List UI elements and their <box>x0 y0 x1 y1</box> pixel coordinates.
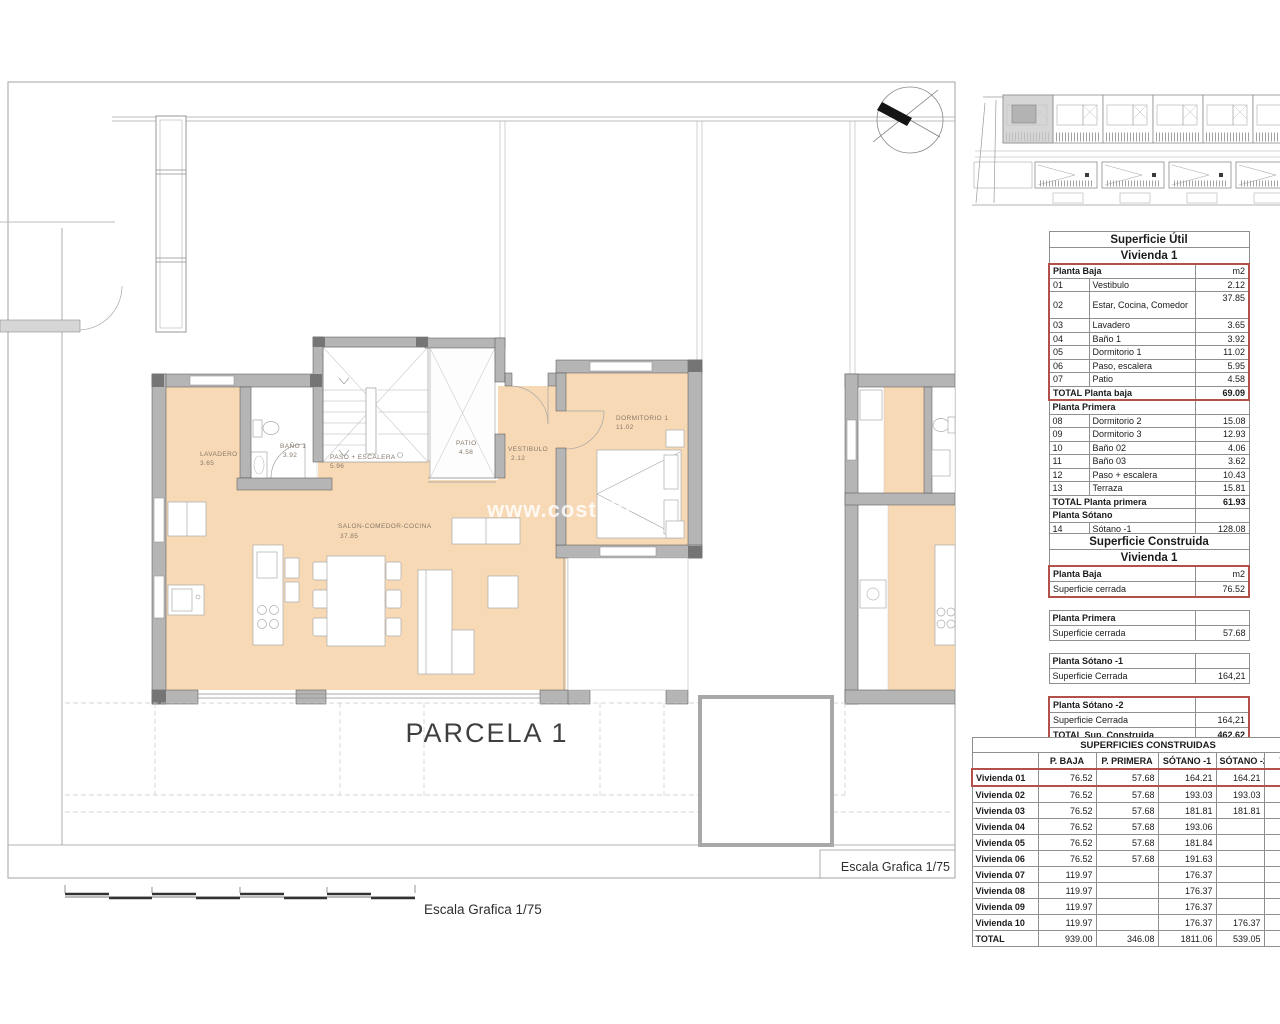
table-row: Vivienda 08119.97176.37 <box>972 883 1280 899</box>
table-row: 13Terraza15.81 <box>1049 482 1249 496</box>
sink-unit <box>168 585 204 615</box>
scale-label-corner: Escala Grafica 1/75 <box>841 860 950 874</box>
table-row: Vivienda 0376.5257.68181.81181.81 <box>972 803 1280 819</box>
table-row: Superficie cerrada57.68 <box>1049 626 1249 641</box>
table-row: 12Paso + escalera10.43 <box>1049 468 1249 482</box>
site-plan <box>972 95 1280 205</box>
table-row: Planta Primera <box>1049 611 1249 626</box>
north-arrow-icon <box>873 87 943 153</box>
table-title-row: Superficie Útil <box>1049 232 1249 248</box>
superficies-construidas-summary-table: SUPERFICIES CONSTRUIDAS P. BAJA P. PRIME… <box>971 737 1280 947</box>
table-title-row: SUPERFICIES CONSTRUIDAS <box>972 738 1280 753</box>
superficie-construida-table: Superficie Construida Vivienda 1 Planta … <box>1048 533 1250 744</box>
room-area-dormitorio: 11.02 <box>616 424 634 431</box>
planta-baja-section: Planta Bajam2 01Vestibulo2.12 02Estar, C… <box>1049 264 1249 400</box>
table-subtitle: Vivienda 1 <box>1049 550 1249 567</box>
room-area-paso: 5.96 <box>330 463 344 470</box>
col-header: SÓTANO -2 <box>1216 753 1264 770</box>
room-label-dormitorio: DORMITORIO 1 <box>616 415 668 422</box>
table-subtitle-row: Vivienda 1 <box>1049 248 1249 265</box>
table-row: 04Baño 13.92 <box>1049 332 1249 346</box>
room-area-patio: 4.58 <box>459 449 473 456</box>
table-row: Planta Sótano -2 <box>1049 697 1249 713</box>
table-title: SUPERFICIES CONSTRUIDAS <box>972 738 1280 753</box>
table-row: Vivienda 0476.5257.68193.06 <box>972 819 1280 835</box>
parcel-label: PARCELA 1 <box>405 718 568 748</box>
cabinet <box>168 502 206 536</box>
col-header: SÓTANO -1 <box>1158 753 1216 770</box>
room-label-bano: BAÑO 1 <box>280 441 306 450</box>
table-row: Planta Bajam2 <box>1049 566 1249 582</box>
fence-strip <box>156 116 186 332</box>
table-row: 09Dormitorio 312.93 <box>1049 428 1249 442</box>
room-label-patio: PATIO <box>456 440 477 447</box>
table-row: Planta Bajam2 <box>1049 264 1249 278</box>
table-row: Planta Sótano -1 <box>1049 654 1249 669</box>
coffee-table <box>488 576 518 608</box>
table-row: 11Baño 033.62 <box>1049 455 1249 469</box>
watermark: www.costabl si <box>487 497 632 523</box>
patio-area <box>428 346 496 482</box>
room-label-vestibulo: VESTIBULO <box>508 446 548 453</box>
pool <box>700 697 832 845</box>
table-title: Superficie Útil <box>1049 232 1249 248</box>
table-row: Superficie Cerrada164,21 <box>1049 669 1249 684</box>
table-row: Planta Sótano <box>1049 509 1249 523</box>
col-header: TOTAL <box>1264 753 1280 770</box>
vivienda-01-highlight: Vivienda 0176.5257.68164.21164.21 <box>972 769 1280 786</box>
table-row: TOTAL Planta baja69.09 <box>1049 386 1249 400</box>
table-row: 05Dormitorio 111.02 <box>1049 346 1249 360</box>
table-row: Vivienda 0676.5257.68191.63 <box>972 851 1280 867</box>
table-row: 01Vestibulo2.12 <box>1049 278 1249 292</box>
table-row: TOTAL939.00346.081811.06539.05 <box>972 931 1280 947</box>
table-subtitle: Vivienda 1 <box>1049 248 1249 265</box>
room-label-salon: SALON-COMEDOR-COCINA <box>338 523 432 530</box>
table-row: 10Baño 024.06 <box>1049 441 1249 455</box>
neighbour-unit <box>845 374 955 704</box>
table-title: Superficie Construida <box>1049 534 1249 550</box>
col-header: P. BAJA <box>1038 753 1096 770</box>
table-row: Vivienda 09119.97176.37 <box>972 899 1280 915</box>
table-row: 06Paso, escalera5.95 <box>1049 359 1249 373</box>
scale-label-bottom: Escala Grafica 1/75 <box>424 902 542 917</box>
table-row: 08Dormitorio 215.08 <box>1049 414 1249 428</box>
table-row: 07Patio4.58 <box>1049 373 1249 387</box>
bathroom <box>251 387 317 479</box>
neighbour-outline <box>0 286 122 332</box>
table-row: Superficie Cerrada164,21 <box>1049 713 1249 728</box>
table-row: Superficie cerrada76.52 <box>1049 582 1249 598</box>
table-row: Vivienda 0576.5257.68181.84 <box>972 835 1280 851</box>
room-area-bano: 3.92 <box>283 452 297 459</box>
table-row: Vivienda 07119.97176.37 <box>972 867 1280 883</box>
planta-baja-construida-section: Planta Bajam2 Superficie cerrada76.52 <box>1049 566 1249 597</box>
room-label-lavadero: LAVADERO <box>200 451 238 458</box>
room-area-salon: 37.85 <box>340 533 358 540</box>
table-row: Vivienda 10119.97176.37176.37 <box>972 915 1280 931</box>
architectural-plan-sheet: { "plan": { "parcel": "PARCELA 1", "scal… <box>0 0 1280 1024</box>
porch <box>568 558 688 690</box>
superficie-util-table: Superficie Útil Vivienda 1 Planta Bajam2… <box>1048 231 1250 563</box>
table-title-row: Superficie Construida <box>1049 534 1249 550</box>
table-row: 02Estar, Cocina, Comedor37.85 <box>1049 292 1249 319</box>
room-label-paso: PASO + ESCALERA <box>330 454 396 461</box>
table-header-row: P. BAJA P. PRIMERA SÓTANO -1 SÓTANO -2 T… <box>972 753 1280 770</box>
watermark-right: si <box>703 497 723 523</box>
col-header <box>972 753 1038 770</box>
staircase <box>323 347 428 462</box>
table-row: Vivienda 0276.5257.68193.03193.03 <box>972 786 1280 803</box>
room-area-vestibulo: 2.12 <box>511 455 525 462</box>
table-row: 03Lavadero3.65 <box>1049 319 1249 333</box>
dining-set <box>313 556 401 646</box>
table-row: Planta Primera <box>1049 400 1249 414</box>
col-header: P. PRIMERA <box>1096 753 1158 770</box>
table-row: Vivienda 0176.5257.68164.21164.21 <box>972 769 1280 786</box>
table-subtitle-row: Vivienda 1 <box>1049 550 1249 567</box>
scale-bar <box>65 885 415 898</box>
table-row: TOTAL Planta primera61.93 <box>1049 495 1249 509</box>
watermark-left: www.costabl <box>487 497 632 522</box>
room-area-lavadero: 3.65 <box>200 460 214 467</box>
